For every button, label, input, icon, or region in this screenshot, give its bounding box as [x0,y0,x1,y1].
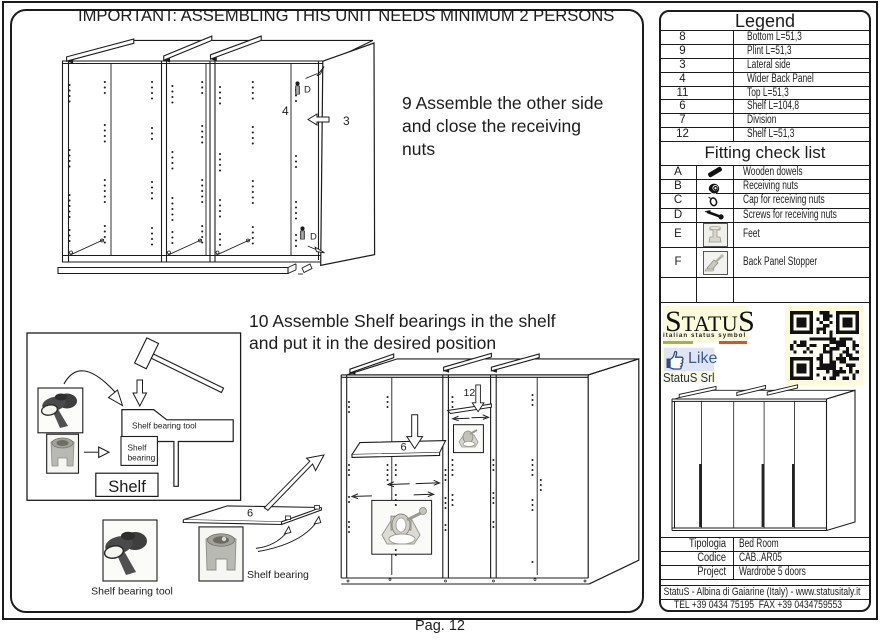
svg-text:4: 4 [282,104,289,118]
svg-text:6: 6 [401,441,407,453]
svg-text:6: 6 [247,508,253,520]
svg-text:D: D [310,232,317,243]
svg-text:3: 3 [343,114,350,128]
svg-text:bearing: bearing [128,453,156,463]
svg-text:Shelf bearing: Shelf bearing [247,569,309,581]
svg-text:12: 12 [464,387,476,399]
svg-text:D: D [304,85,311,96]
svg-text:Shelf bearing tool: Shelf bearing tool [91,586,173,598]
svg-text:Shelf: Shelf [108,478,146,496]
svg-text:Shelf: Shelf [128,443,148,453]
svg-text:Shelf bearing tool: Shelf bearing tool [132,421,197,431]
